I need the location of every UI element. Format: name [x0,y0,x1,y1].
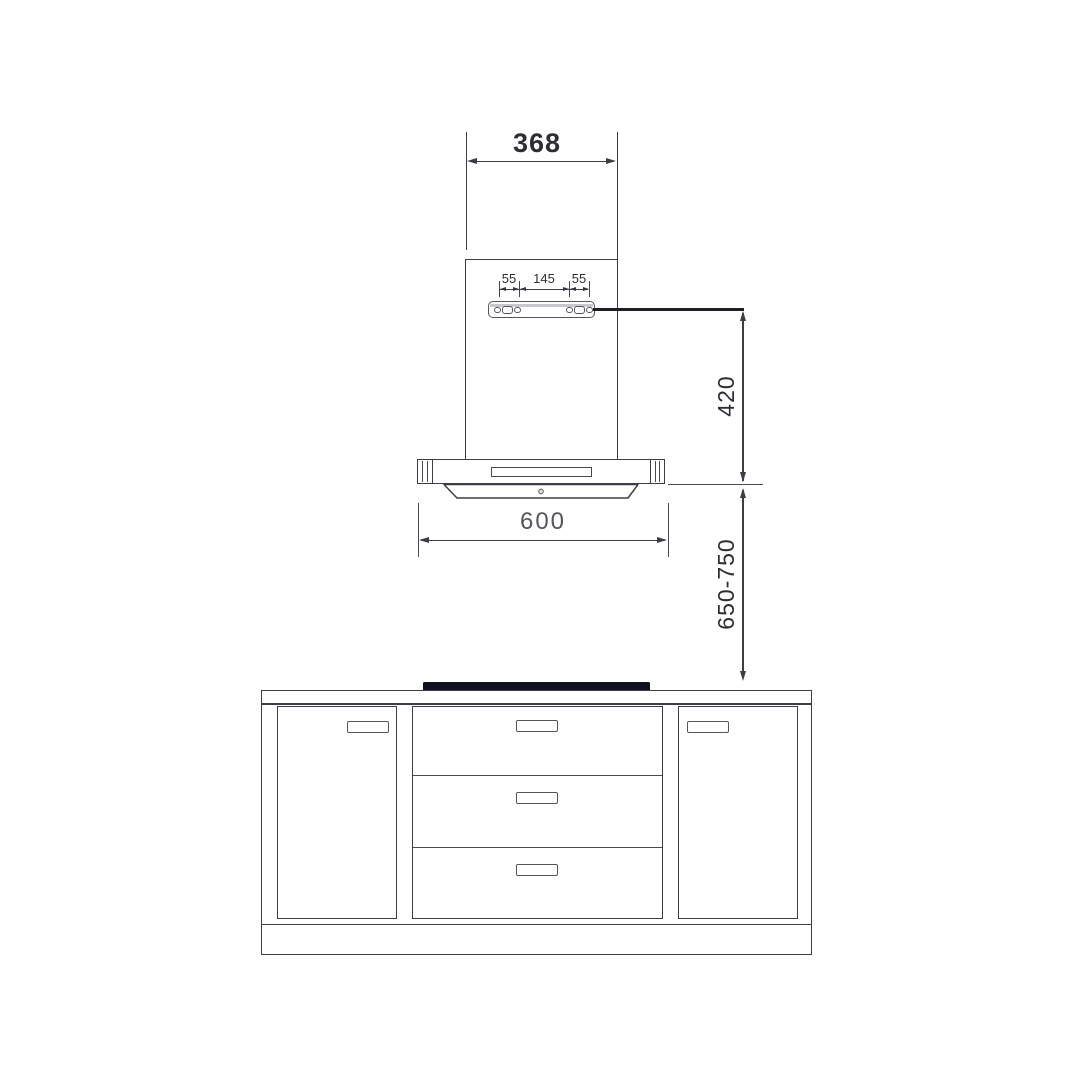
dim-line [742,313,743,481]
left-door-handle [347,721,389,733]
hood-bottom-panel [438,482,646,504]
hood-left-endcap-line [422,461,423,483]
arrowhead-left [467,158,477,164]
drawer-divider [413,847,662,848]
arrowhead-right [563,287,569,291]
hood-right-endcap-line [659,461,660,483]
arrowhead-right [606,158,616,164]
installation-diagram: 368 55 145 55 [0,0,1080,1080]
arrowhead-right [657,537,667,543]
plinth-line [262,924,811,925]
bracket-screw-hole [494,307,501,314]
dim-420-label: 420 [714,366,738,426]
arrowhead-right [583,287,589,291]
bracket-leader-line [593,308,744,311]
hood-right-endcap-edge [650,460,651,483]
hood-left-endcap-edge [432,460,433,483]
arrowhead-left [419,537,429,543]
extension-line-left [418,503,419,557]
hood-left-endcap-line [427,461,428,483]
extension-tick [589,281,590,297]
right-door-handle [687,721,729,733]
bracket-slot [502,306,513,314]
chimney-duct-left-line [466,132,467,250]
bracket-slot [574,306,585,314]
dim-hood-width-label: 600 [503,508,583,536]
arrowhead-down [740,671,746,681]
arrowhead-left [520,287,526,291]
bracket-screw-hole [586,307,593,314]
dim-650-750-label: 650-750 [714,534,738,634]
arrowhead-down [740,472,746,482]
bracket-screw-hole [514,307,521,314]
arrowhead-left [570,287,576,291]
drawer-handle [516,792,558,804]
dim-chimney-width-label: 368 [497,128,577,159]
bracket-screw-hole [566,307,573,314]
chimney-duct-right-line [617,132,618,260]
arrowhead-right [513,287,519,291]
dim-bracket-center-label: 145 [527,271,561,286]
cabinet-right-door [678,706,798,919]
extension-line-hood-bottom [668,484,763,485]
arrowhead-left [500,287,506,291]
extension-line-right [668,503,669,557]
drawer-handle [516,720,558,732]
hood-bottom-screw [539,489,544,494]
dim-line [470,161,614,162]
arrowhead-up [740,488,746,498]
hood-right-endcap-line [655,461,656,483]
hood-vent-panel [491,467,592,478]
cabinet-left-door [277,706,397,919]
arrowhead-up [740,311,746,321]
dim-line [742,490,743,671]
drawer-handle [516,864,558,876]
cabinet-drawer-stack [412,706,663,919]
countertop-line [262,703,811,704]
drawer-divider [413,775,662,776]
dim-line [421,540,665,541]
